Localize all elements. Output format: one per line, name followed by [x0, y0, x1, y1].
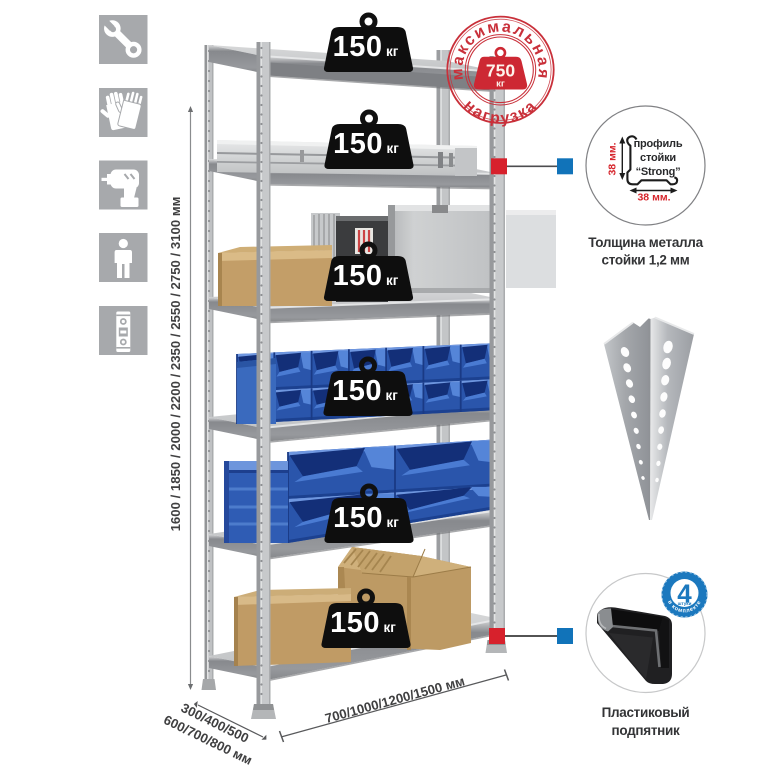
svg-text:подпятник: подпятник: [612, 723, 680, 738]
svg-text:профиль: профиль: [634, 138, 683, 150]
svg-text:кг: кг: [496, 79, 505, 90]
svg-text:150: 150: [332, 375, 382, 407]
svg-text:кг: кг: [386, 388, 399, 403]
svg-text:кг: кг: [387, 141, 400, 156]
svg-text:кг: кг: [384, 620, 397, 635]
svg-text:150: 150: [333, 31, 383, 63]
svg-text:38 мм.: 38 мм.: [607, 142, 619, 175]
svg-text:150: 150: [333, 260, 383, 292]
svg-text:штуки: штуки: [678, 601, 692, 606]
svg-text:кг: кг: [387, 515, 400, 530]
svg-text:стойки 1,2 мм: стойки 1,2 мм: [602, 253, 690, 268]
svg-text:Пластиковый: Пластиковый: [602, 705, 690, 720]
svg-text:“Strong”: “Strong”: [636, 166, 681, 178]
svg-text:150: 150: [333, 502, 383, 534]
svg-text:кг: кг: [386, 44, 399, 59]
svg-text:1600 / 1850 / 2000 / 2200 / 23: 1600 / 1850 / 2000 / 2200 / 2350 / 2550 …: [168, 197, 183, 532]
svg-text:38 мм.: 38 мм.: [637, 192, 670, 204]
svg-text:750: 750: [486, 61, 515, 81]
svg-text:стойки: стойки: [640, 152, 676, 164]
svg-text:кг: кг: [386, 273, 399, 288]
svg-text:150: 150: [333, 128, 383, 160]
svg-text:150: 150: [330, 607, 380, 639]
svg-text:Толщина металла: Толщина металла: [588, 235, 703, 250]
